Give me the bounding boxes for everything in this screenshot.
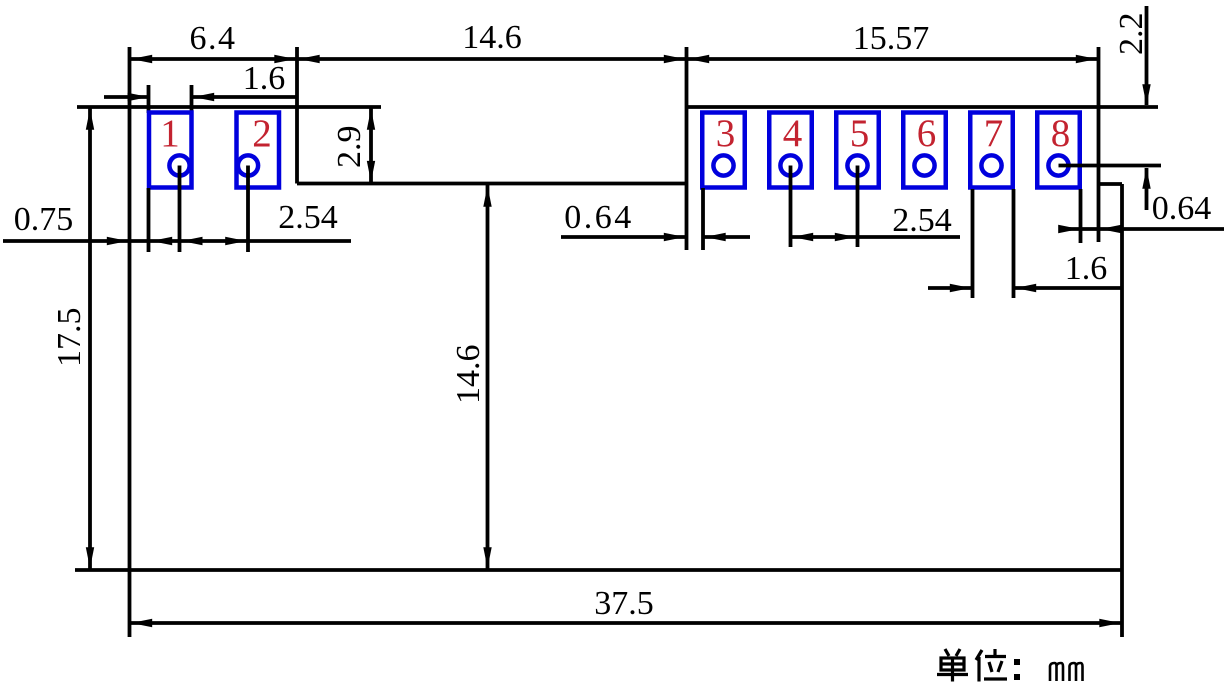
svg-text:15.57: 15.57 (853, 20, 930, 57)
svg-text:2.2: 2.2 (1113, 13, 1150, 56)
svg-text:0.75: 0.75 (14, 201, 74, 238)
svg-text:0.64: 0.64 (1152, 190, 1212, 227)
svg-text:7: 7 (984, 112, 1004, 155)
svg-text:2.9: 2.9 (331, 126, 368, 169)
svg-text:17.5: 17.5 (51, 308, 88, 368)
svg-text:8: 8 (1051, 112, 1071, 155)
svg-text:1: 1 (160, 112, 180, 155)
svg-text:2: 2 (252, 112, 272, 155)
svg-text:4: 4 (783, 112, 803, 155)
svg-text:5: 5 (850, 112, 870, 155)
svg-text:0.64: 0.64 (564, 199, 634, 236)
svg-text:1.6: 1.6 (243, 60, 286, 97)
svg-text:3: 3 (716, 112, 736, 155)
svg-text:2.54: 2.54 (278, 199, 338, 236)
svg-text:6: 6 (917, 112, 937, 155)
svg-text:2.54: 2.54 (892, 202, 952, 239)
svg-text:6.4: 6.4 (190, 20, 237, 57)
svg-text:37.5: 37.5 (594, 585, 654, 622)
svg-text:14.6: 14.6 (450, 345, 487, 405)
svg-text:1.6: 1.6 (1065, 250, 1108, 287)
svg-text:14.6: 14.6 (462, 19, 522, 56)
